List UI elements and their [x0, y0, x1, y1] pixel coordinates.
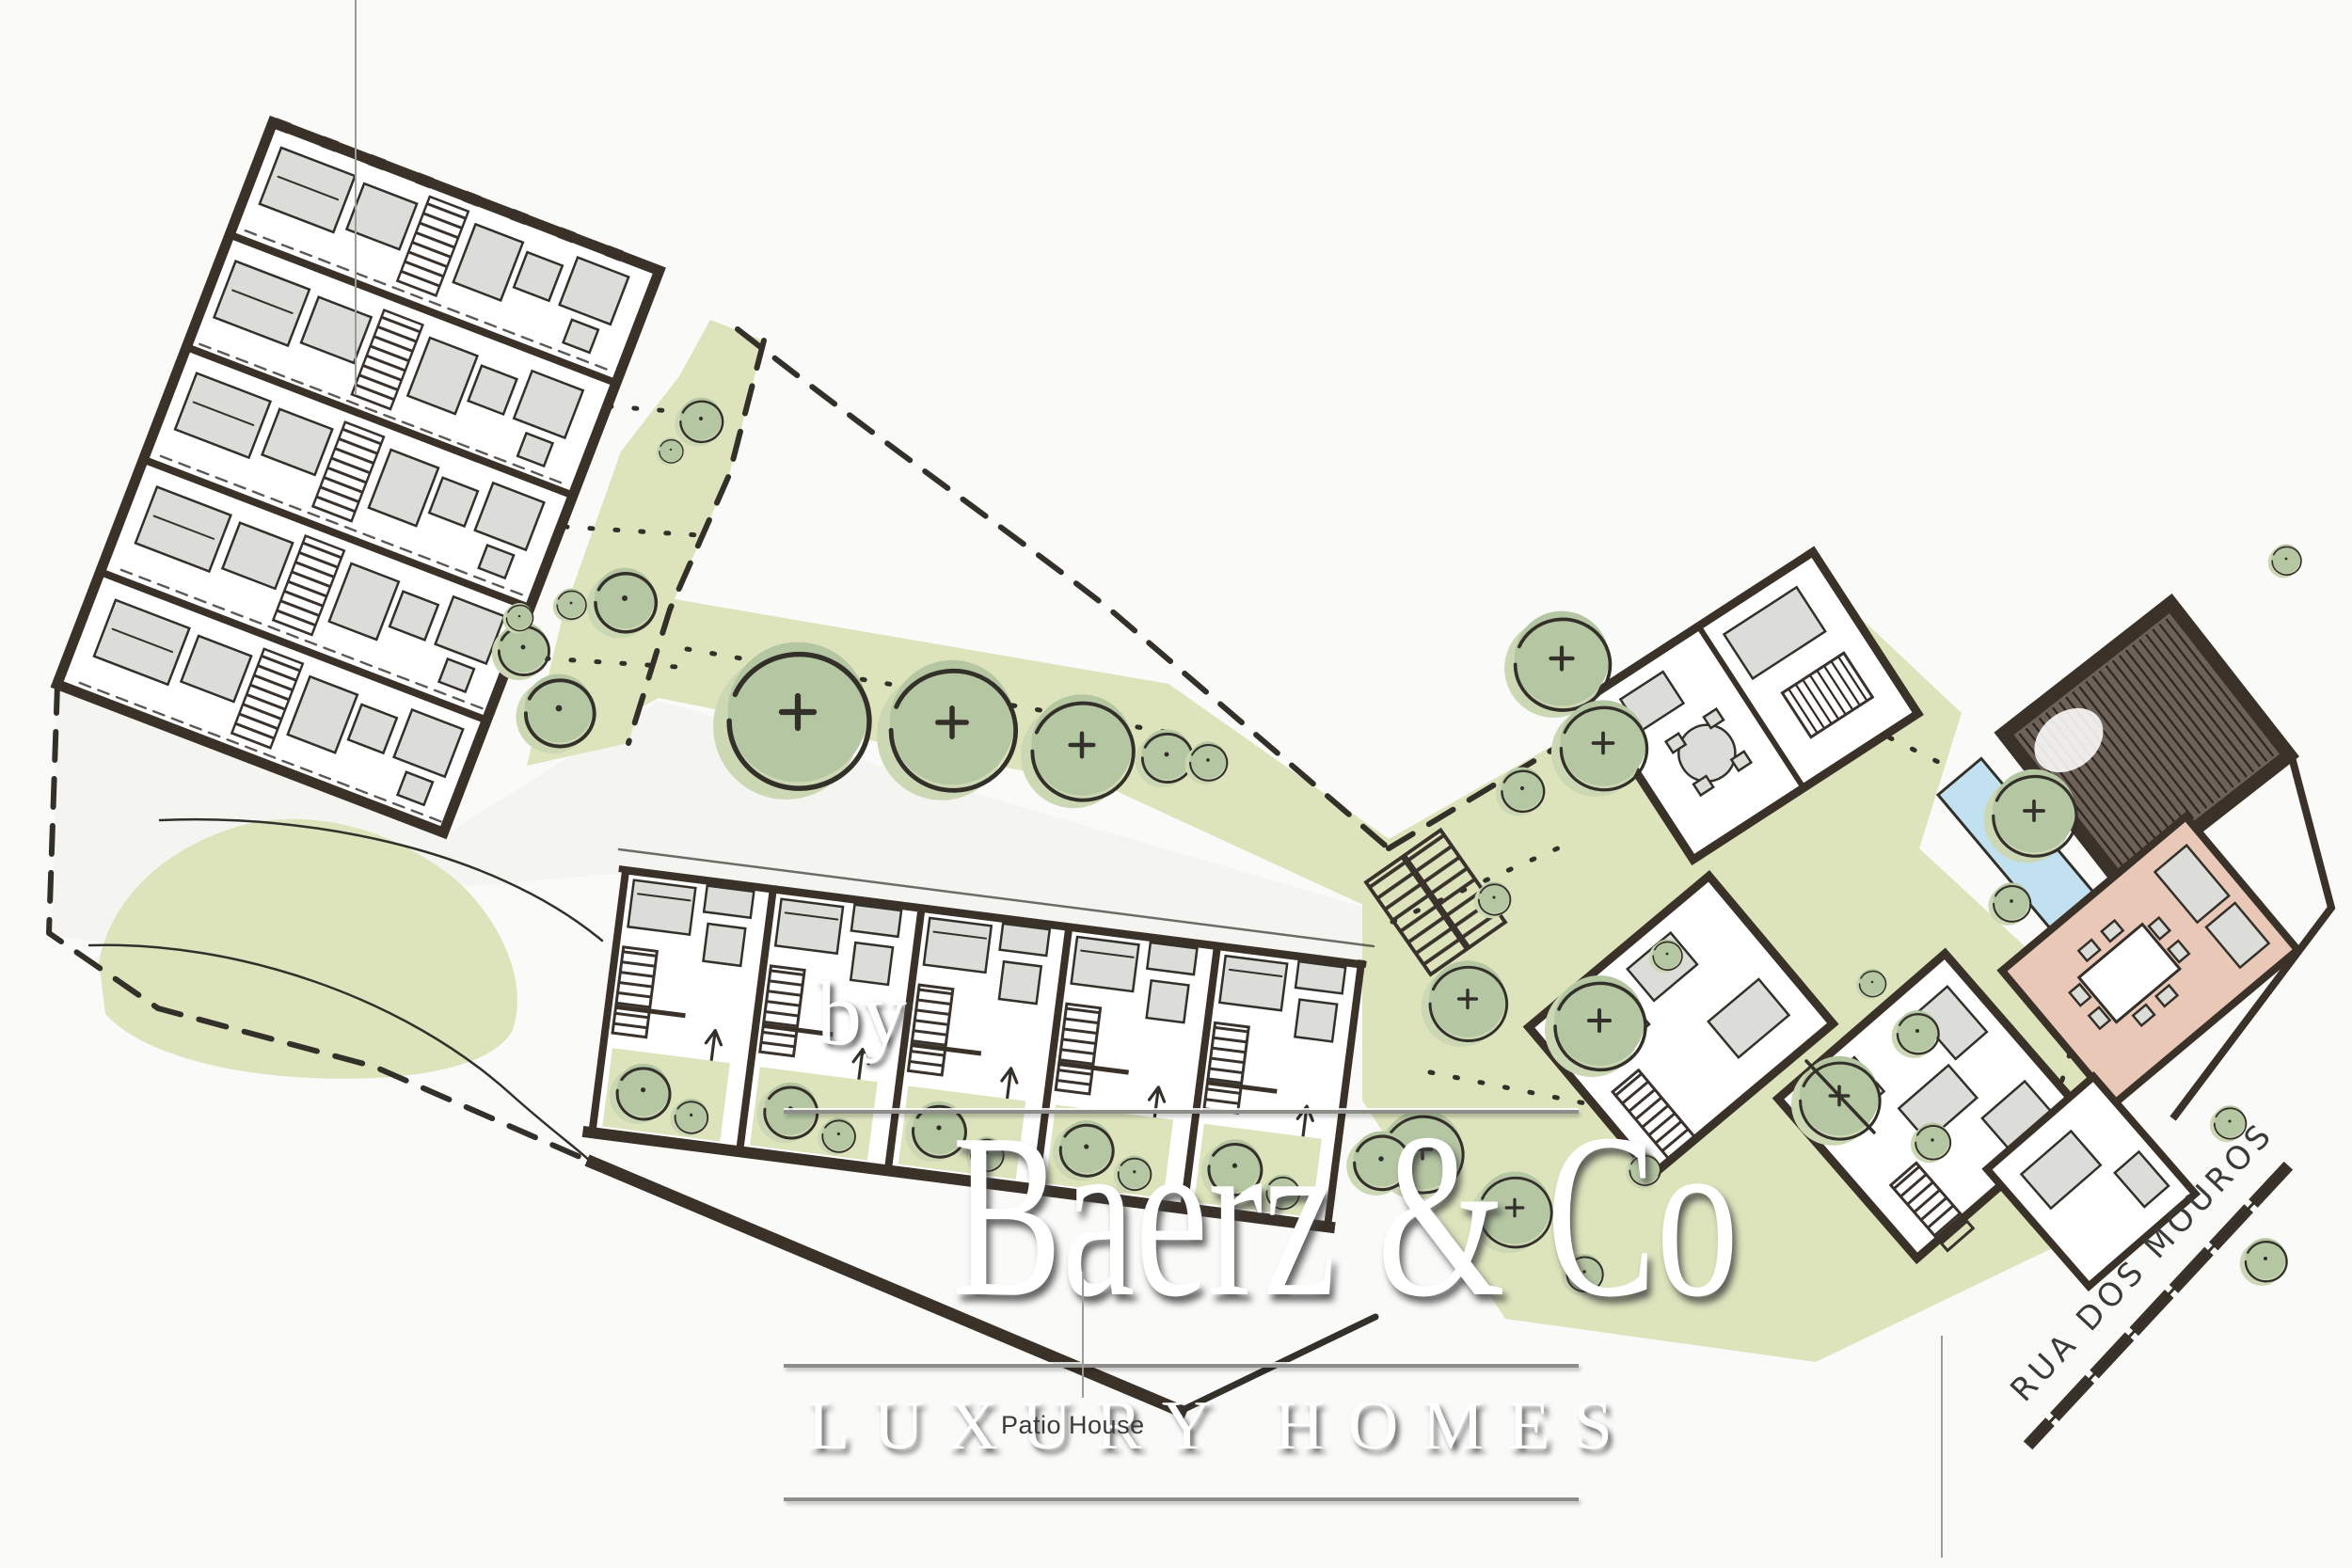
guide-line-bottom-right — [1941, 1336, 1943, 1558]
watermark-brand-text: Baerz & Co — [952, 1099, 1739, 1334]
watermark-by: by — [817, 961, 907, 1066]
tree — [2268, 545, 2301, 578]
tree — [2240, 1238, 2287, 1286]
guide-line-top-left — [355, 0, 357, 395]
watermark-tagline: LUXURY HOMES — [784, 1386, 1579, 1466]
tree — [1989, 882, 2031, 926]
watermark-rule-bottom — [784, 1497, 1579, 1501]
watermark-rule-middle — [784, 1364, 1579, 1368]
site-plan-canvas: RUA DOS MOUROS by Baerz & Co LUXURY HOME… — [0, 0, 2352, 1568]
guide-line-center — [1082, 1272, 1084, 1398]
watermark-brand: Baerz & Co — [784, 1099, 1579, 1334]
patio-house-label: Patio House — [1001, 1411, 1145, 1440]
